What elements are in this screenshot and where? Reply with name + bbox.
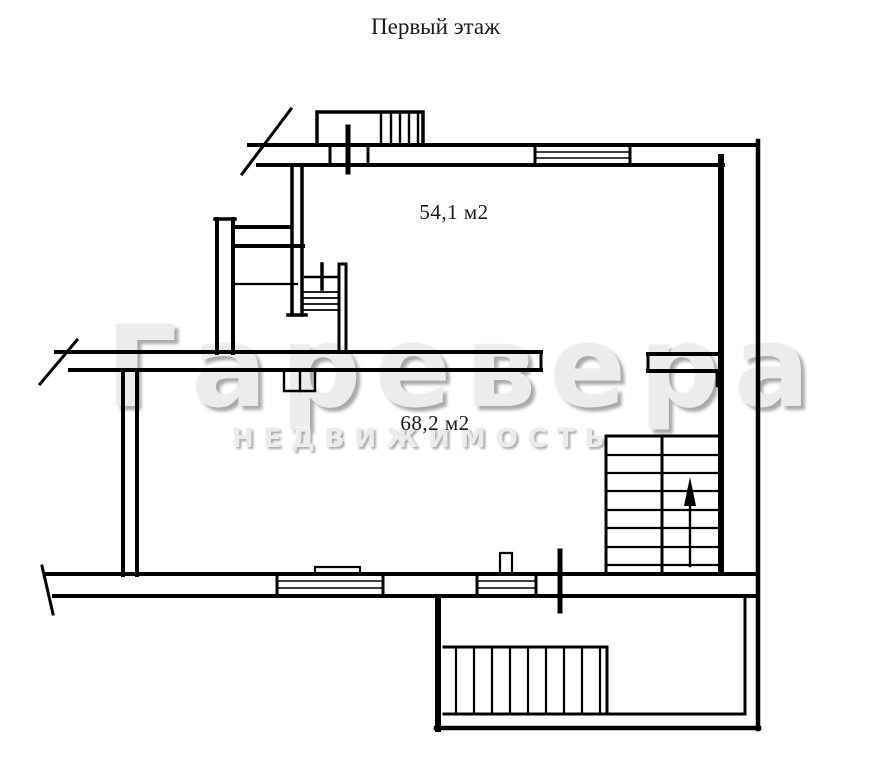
vent-stub [500,553,512,574]
top-wall [242,109,756,174]
main-staircase [606,436,721,573]
upper-stair-treads [303,292,339,310]
door-swing-middle-left [40,340,77,384]
middle-wall [40,340,721,391]
top-porch [317,112,423,143]
bottom-wall-window-1 [277,567,383,596]
upper-left-partition-walls [215,166,306,353]
bottom-wall [42,551,756,614]
room1-area-label: 54,1 м2 [419,200,488,224]
entrance-steps [444,647,607,714]
middle-wall-right-segment [648,354,721,386]
right-walls [721,141,758,729]
entrance-extension [436,597,759,729]
floor-plan-drawing: 54,1 м2 68,2 м2 [0,0,871,768]
porch-hatch-lines [381,112,418,143]
room2-area-label: 68,2 м2 [400,411,469,435]
lower-left-wall [123,371,137,575]
top-wall-window [535,145,630,165]
floor-plan-page: Первый этаж Гаревера НЕДВИЖИМОСТЬ [0,0,871,768]
wall-niche-box [284,372,315,391]
